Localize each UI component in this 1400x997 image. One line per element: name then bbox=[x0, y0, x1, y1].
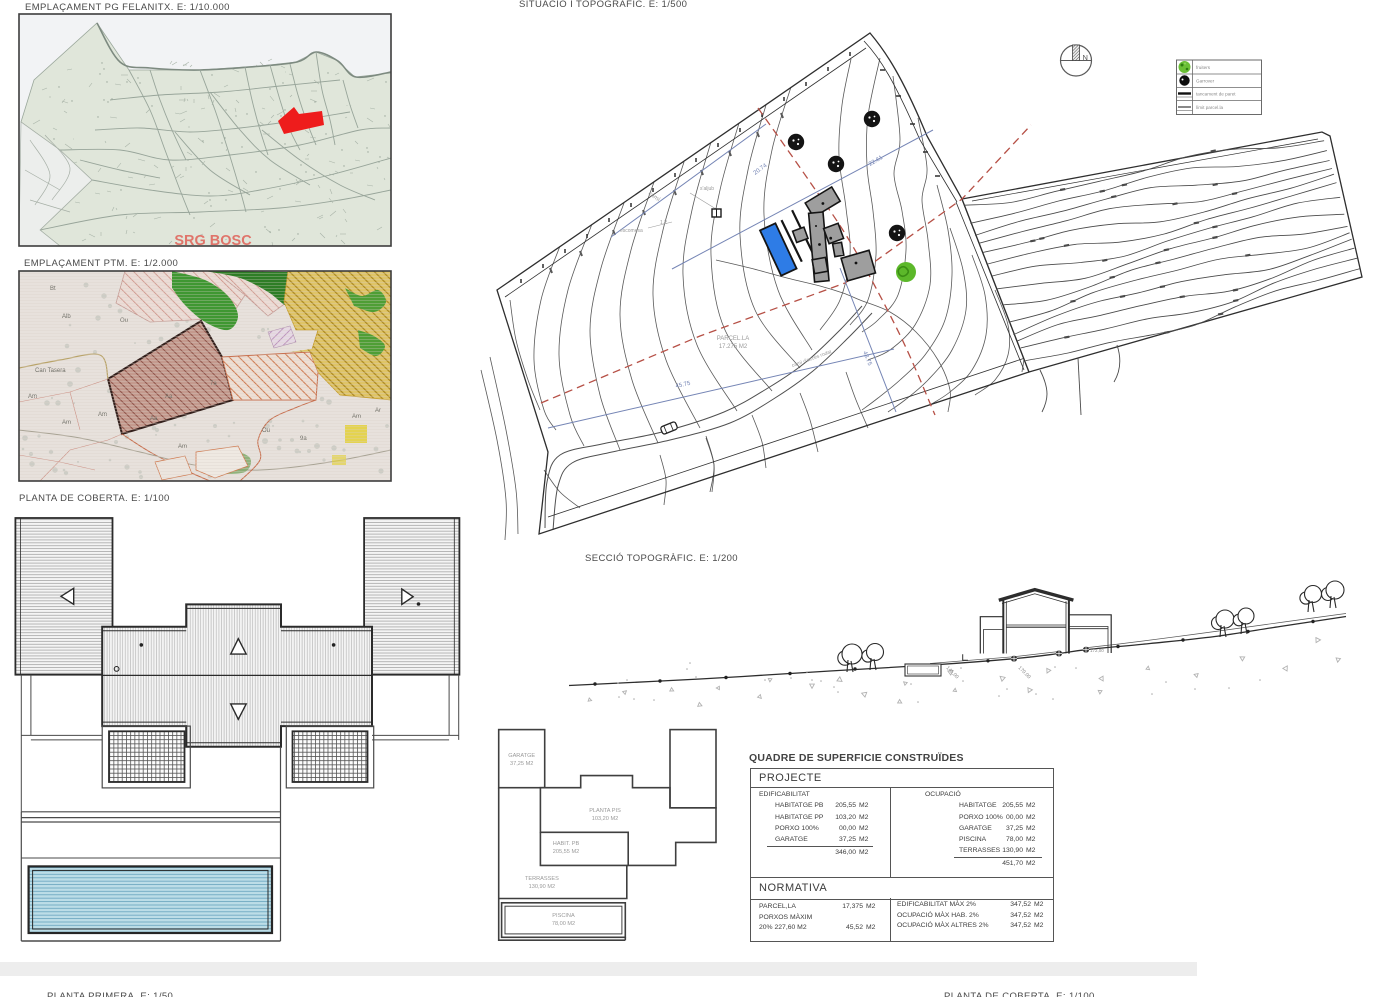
svg-text:PLANTA PIS: PLANTA PIS bbox=[589, 808, 621, 814]
svg-text:17.275 M2: 17.275 M2 bbox=[719, 344, 748, 350]
svg-text:TERRASSES: TERRASSES bbox=[525, 876, 559, 882]
svg-text:PARCEL.LA: PARCEL.LA bbox=[717, 336, 750, 342]
svg-text:tancament de paret: tancament de paret bbox=[1196, 92, 1236, 97]
svg-text:145,00: 145,00 bbox=[945, 665, 960, 680]
svg-text:170.00: 170.00 bbox=[1017, 665, 1032, 680]
svg-text:172,00: 172,00 bbox=[1090, 648, 1104, 653]
svg-text:78,00 M2: 78,00 M2 bbox=[552, 921, 575, 927]
svg-text:37,25 M2: 37,25 M2 bbox=[510, 761, 533, 767]
svg-text:HABIT. PB: HABIT. PB bbox=[553, 841, 580, 847]
svg-text:s'aljub: s'aljub bbox=[700, 186, 714, 192]
svg-text:205,55 M2: 205,55 M2 bbox=[553, 849, 579, 855]
svg-text:20.74: 20.74 bbox=[753, 163, 769, 177]
svg-text:GARATGE: GARATGE bbox=[508, 753, 535, 759]
svg-text:fruiters: fruiters bbox=[1196, 65, 1211, 70]
svg-text:límit parcel.la: límit parcel.la bbox=[1196, 105, 1224, 110]
svg-text:103,20 M2: 103,20 M2 bbox=[592, 816, 618, 822]
svg-text:43.75: 43.75 bbox=[861, 351, 872, 368]
svg-text:Garrover: Garrover bbox=[1196, 79, 1215, 84]
svg-text:45.75: 45.75 bbox=[675, 381, 692, 390]
svg-text:escomesa: escomesa bbox=[620, 228, 643, 234]
svg-text:1.2: 1.2 bbox=[660, 220, 667, 226]
svg-text:N: N bbox=[1083, 53, 1088, 62]
svg-text:130,90 M2: 130,90 M2 bbox=[529, 884, 555, 890]
svg-text:PISCINA: PISCINA bbox=[552, 913, 575, 919]
